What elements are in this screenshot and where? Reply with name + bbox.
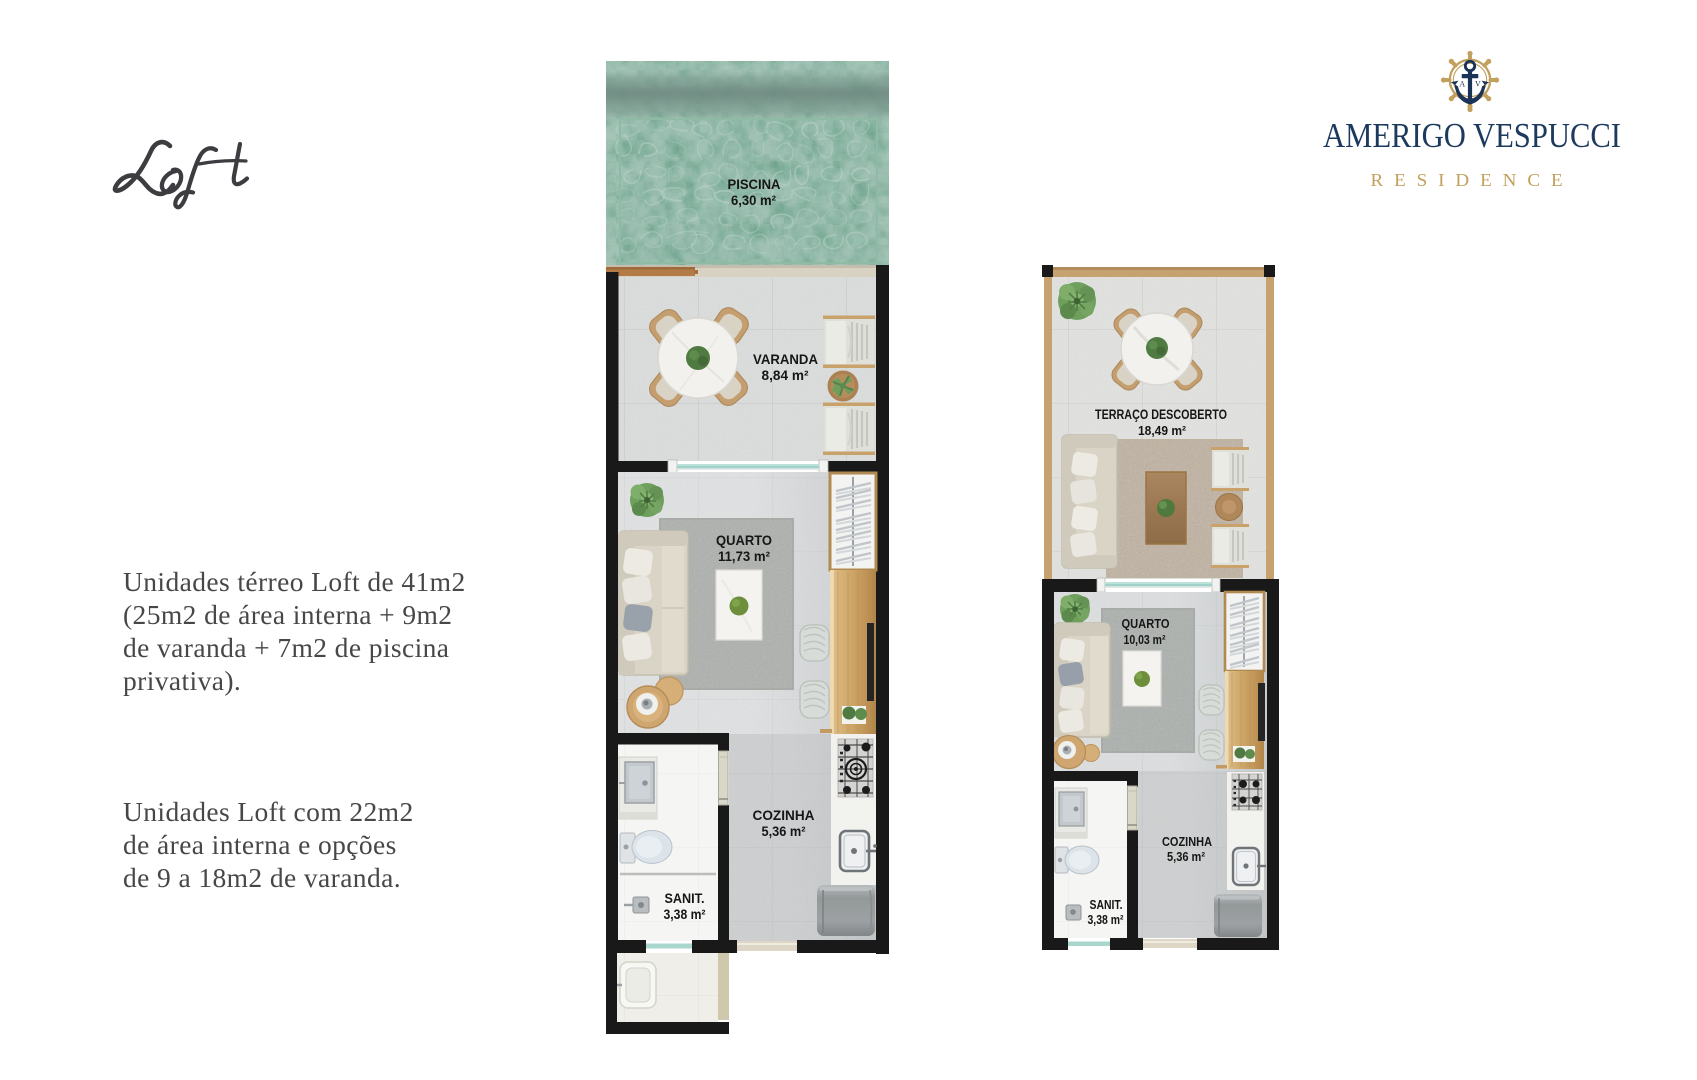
svg-text:TERRAÇO DESCOBERTO: TERRAÇO DESCOBERTO	[1095, 407, 1227, 422]
svg-text:3,38 m²: 3,38 m²	[664, 907, 706, 922]
svg-text:privativa).: privativa).	[123, 665, 241, 696]
svg-text:QUARTO: QUARTO	[1122, 617, 1170, 631]
svg-text:AMERIGO VESPUCCI: AMERIGO VESPUCCI	[1323, 116, 1621, 155]
svg-text:8,84 m²: 8,84 m²	[762, 368, 810, 383]
svg-text:3,38 m²: 3,38 m²	[1088, 913, 1124, 927]
svg-text:de 9 a 18m2 de varanda.: de 9 a 18m2 de varanda.	[123, 862, 401, 893]
svg-text:de varanda + 7m2 de piscina: de varanda + 7m2 de piscina	[123, 632, 449, 663]
svg-text:A: A	[1459, 80, 1465, 89]
svg-text:RESIDENCE: RESIDENCE	[1371, 170, 1574, 190]
svg-text:QUARTO: QUARTO	[716, 532, 772, 548]
svg-text:11,73 m²: 11,73 m²	[718, 549, 770, 564]
svg-text:SANIT.: SANIT.	[665, 890, 705, 906]
svg-text:10,03 m²: 10,03 m²	[1124, 633, 1166, 647]
svg-text:Unidades Loft com 22m2: Unidades Loft com 22m2	[123, 796, 414, 827]
svg-text:SANIT.: SANIT.	[1090, 898, 1123, 912]
svg-text:PISCINA: PISCINA	[728, 177, 781, 192]
svg-text:COZINHA: COZINHA	[1162, 835, 1212, 849]
svg-text:5,36 m²: 5,36 m²	[1167, 850, 1205, 864]
svg-text:VARANDA: VARANDA	[753, 351, 818, 367]
svg-text:18,49 m²: 18,49 m²	[1138, 423, 1187, 438]
svg-text:5,36 m²: 5,36 m²	[762, 824, 806, 839]
svg-text:de área interna e opções: de área interna e opções	[123, 829, 397, 860]
svg-text:COZINHA: COZINHA	[753, 807, 815, 823]
svg-text:(25m2 de área interna + 9m2: (25m2 de área interna + 9m2	[123, 599, 452, 630]
svg-text:6,30 m²: 6,30 m²	[731, 193, 776, 208]
svg-text:V: V	[1475, 80, 1481, 89]
svg-text:Unidades térreo Loft de 41m2: Unidades térreo Loft de 41m2	[123, 566, 466, 597]
